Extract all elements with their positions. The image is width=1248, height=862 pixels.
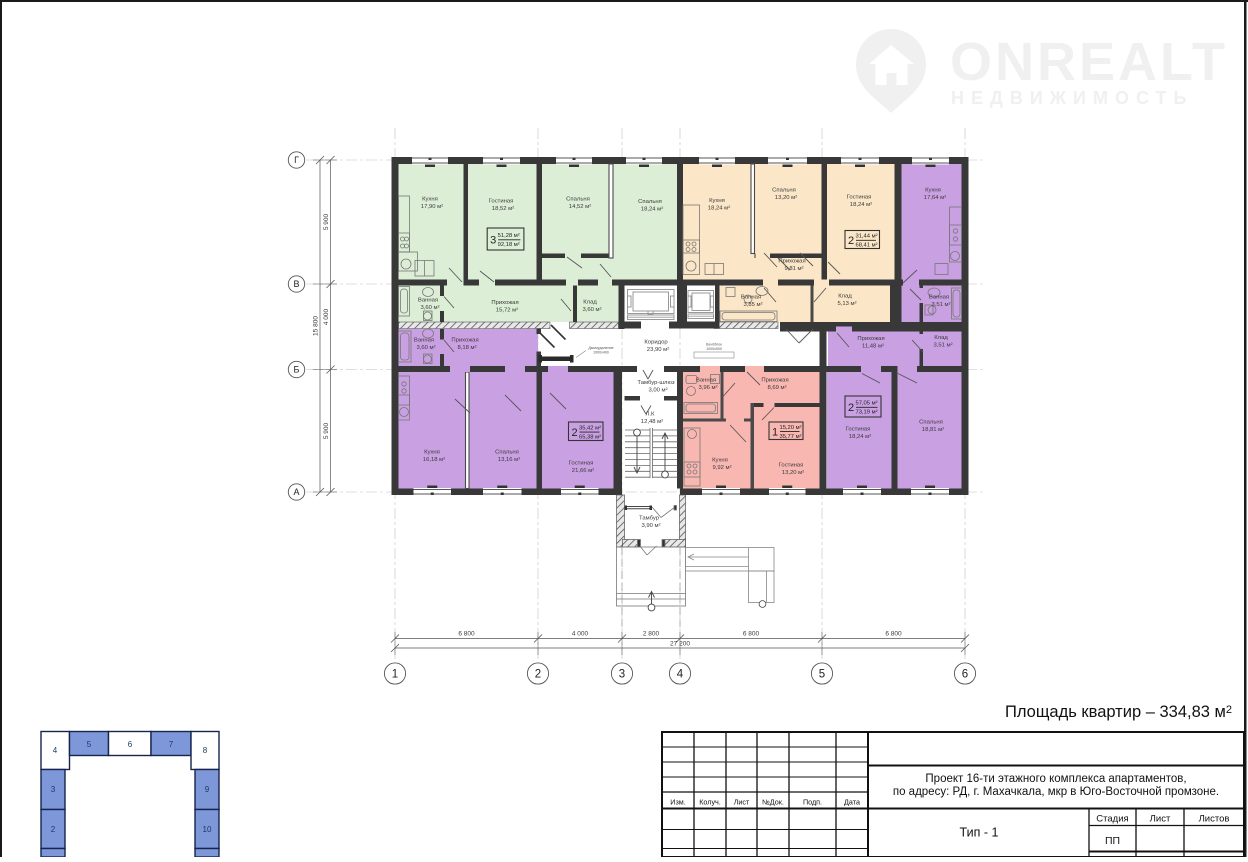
svg-text:3,51 м²: 3,51 м²: [933, 342, 952, 348]
svg-text:2: 2: [571, 427, 577, 439]
svg-text:Лист: Лист: [734, 798, 750, 807]
svg-text:35,77 м²: 35,77 м²: [779, 434, 801, 440]
svg-text:Ванная: Ванная: [418, 298, 438, 304]
svg-text:Площадь квартир – 334,83 м2: Площадь квартир – 334,83 м2: [1005, 703, 1232, 721]
svg-text:Б: Б: [294, 365, 300, 375]
svg-text:12,48 м²: 12,48 м²: [641, 419, 663, 425]
svg-text:Спальня: Спальня: [495, 450, 519, 456]
svg-text:Тамбур: Тамбур: [639, 516, 660, 522]
svg-text:Проект 16-ти этажного комплекс: Проект 16-ти этажного комплекса апартаме…: [925, 773, 1186, 785]
svg-text:Клад: Клад: [934, 335, 948, 341]
svg-text:3,60 м²: 3,60 м²: [420, 305, 439, 311]
svg-text:Гостиная: Гостиная: [569, 461, 594, 467]
svg-text:Тип - 1: Тип - 1: [960, 826, 999, 840]
svg-text:2: 2: [848, 235, 854, 247]
svg-text:Спальня: Спальня: [566, 197, 590, 203]
svg-text:6 800: 6 800: [885, 631, 902, 638]
svg-text:Лист: Лист: [1150, 814, 1171, 825]
svg-text:ONREALT: ONREALT: [950, 32, 1228, 92]
svg-text:15,20 м²: 15,20 м²: [779, 425, 801, 431]
svg-text:Г: Г: [294, 155, 299, 165]
svg-text:3: 3: [490, 235, 496, 247]
svg-text:3,85 м²: 3,85 м²: [743, 302, 762, 308]
svg-text:27 200: 27 200: [670, 641, 690, 648]
svg-text:Листов: Листов: [1199, 814, 1230, 825]
svg-text:9: 9: [205, 785, 210, 794]
svg-text:65,38 м²: 65,38 м²: [579, 434, 601, 440]
svg-text:8,18 м²: 8,18 м²: [457, 345, 476, 351]
svg-text:1000х400: 1000х400: [593, 351, 609, 355]
svg-text:9,92 м²: 9,92 м²: [712, 465, 731, 471]
svg-text:Ванная: Ванная: [929, 295, 949, 301]
svg-text:9,81 м²: 9,81 м²: [784, 266, 803, 272]
svg-text:6 800: 6 800: [458, 631, 475, 638]
svg-text:21,66 м²: 21,66 м²: [572, 468, 594, 474]
svg-text:92,18 м²: 92,18 м²: [498, 242, 520, 248]
svg-text:16,18 м²: 16,18 м²: [423, 457, 445, 463]
svg-text:6 800: 6 800: [743, 631, 760, 638]
svg-text:14,52 м²: 14,52 м²: [569, 204, 591, 210]
svg-text:Ванная: Ванная: [414, 338, 434, 344]
svg-text:6: 6: [128, 740, 133, 749]
svg-text:3,00 м²: 3,00 м²: [648, 387, 667, 393]
svg-text:Спальня: Спальня: [919, 420, 943, 426]
svg-text:Колуч.: Колуч.: [699, 798, 721, 807]
svg-text:Прихожая: Прихожая: [491, 300, 518, 306]
svg-text:Кухня: Кухня: [925, 188, 941, 194]
svg-text:35,42 м²: 35,42 м²: [579, 425, 601, 431]
svg-text:17,64 м²: 17,64 м²: [924, 195, 946, 201]
svg-text:Тамбур-шлюз: Тамбур-шлюз: [637, 380, 675, 386]
svg-text:5: 5: [819, 669, 825, 681]
svg-text:1: 1: [772, 426, 778, 438]
svg-text:Ванная: Ванная: [741, 295, 761, 301]
svg-text:Стадия: Стадия: [1096, 814, 1128, 825]
svg-text:Гостиная: Гостиная: [846, 427, 871, 433]
svg-text:Прихожая: Прихожая: [761, 378, 788, 384]
svg-text:3,51 м²: 3,51 м²: [931, 302, 950, 308]
svg-text:18,81 м²: 18,81 м²: [922, 427, 944, 433]
svg-text:Дымоудаление: Дымоудаление: [588, 346, 613, 350]
svg-text:ПП: ПП: [1105, 835, 1120, 847]
svg-text:13,20 м²: 13,20 м²: [782, 470, 804, 476]
svg-text:Ванная: Ванная: [696, 378, 716, 384]
svg-text:18,24 м²: 18,24 м²: [850, 202, 872, 208]
svg-text:Подп.: Подп.: [803, 798, 822, 807]
svg-text:Кухня: Кухня: [422, 197, 438, 203]
svg-text:68,41 м²: 68,41 м²: [855, 243, 877, 249]
svg-text:8: 8: [203, 746, 208, 755]
svg-text:7: 7: [169, 740, 174, 749]
svg-text:Коридор: Коридор: [644, 340, 668, 346]
svg-text:по адресу: РД, г. Махачкала, м: по адресу: РД, г. Махачкала, мкр в Юго-В…: [893, 786, 1219, 798]
svg-text:4: 4: [53, 746, 58, 755]
svg-text:Спальня: Спальня: [638, 199, 662, 205]
svg-text:3,96 м²: 3,96 м²: [698, 385, 717, 391]
svg-text:15,72 м²: 15,72 м²: [496, 307, 518, 313]
svg-text:Прихожая: Прихожая: [451, 338, 478, 344]
svg-text:Изм.: Изм.: [670, 798, 685, 807]
svg-text:Спальня: Спальня: [772, 188, 796, 194]
svg-text:3,60 м²: 3,60 м²: [416, 345, 435, 351]
svg-text:23,90 м²: 23,90 м²: [647, 347, 669, 353]
svg-text:4: 4: [677, 669, 684, 681]
svg-text:11,48 м²: 11,48 м²: [862, 343, 884, 349]
svg-text:Клад: Клад: [583, 300, 597, 306]
svg-text:Кухня: Кухня: [709, 198, 725, 204]
svg-text:Кухня: Кухня: [712, 458, 728, 464]
svg-text:4 000: 4 000: [323, 308, 330, 325]
svg-text:Прихожая: Прихожая: [857, 336, 884, 342]
svg-text:Кухня: Кухня: [424, 450, 440, 456]
svg-text:3: 3: [51, 785, 56, 794]
svg-text:18,52 м²: 18,52 м²: [492, 206, 514, 212]
svg-text:4 000: 4 000: [572, 631, 589, 638]
svg-text:А: А: [293, 487, 299, 497]
svg-text:5 900: 5 900: [323, 422, 330, 439]
svg-text:10: 10: [203, 825, 212, 834]
svg-text:13,16 м²: 13,16 м²: [498, 457, 520, 463]
svg-text:1: 1: [392, 669, 398, 681]
svg-text:Л.К: Л.К: [646, 412, 656, 418]
svg-text:1000х500: 1000х500: [706, 347, 722, 351]
svg-text:Дата: Дата: [844, 798, 860, 807]
svg-text:№Док.: №Док.: [762, 798, 784, 807]
svg-text:8,69 м²: 8,69 м²: [767, 385, 786, 391]
svg-text:5 900: 5 900: [323, 213, 330, 230]
svg-text:17,90 м²: 17,90 м²: [421, 204, 443, 210]
svg-text:В: В: [293, 279, 299, 289]
svg-text:6: 6: [962, 669, 968, 681]
svg-text:2: 2: [51, 825, 56, 834]
svg-text:18,24 м²: 18,24 м²: [641, 206, 663, 212]
svg-text:18,24 м²: 18,24 м²: [849, 434, 871, 440]
svg-text:3,90 м²: 3,90 м²: [641, 523, 660, 529]
svg-text:15 800: 15 800: [313, 316, 320, 336]
svg-text:Прихожая: Прихожая: [778, 259, 805, 265]
svg-text:3,60 м²: 3,60 м²: [582, 307, 601, 313]
svg-text:2: 2: [535, 669, 541, 681]
svg-text:5,13 м²: 5,13 м²: [837, 301, 856, 307]
svg-text:Вентблок: Вентблок: [706, 343, 722, 347]
svg-text:НЕДВИЖИМОСТЬ: НЕДВИЖИМОСТЬ: [951, 88, 1193, 108]
svg-text:Гостиная: Гостиная: [489, 199, 514, 205]
svg-text:73,19 м²: 73,19 м²: [855, 410, 877, 416]
svg-text:13,20 м²: 13,20 м²: [775, 195, 797, 201]
svg-text:3: 3: [619, 669, 625, 681]
svg-text:18,24 м²: 18,24 м²: [708, 205, 730, 211]
svg-text:5: 5: [87, 740, 92, 749]
svg-text:Клад: Клад: [838, 294, 852, 300]
svg-text:Гостиная: Гостиная: [779, 463, 804, 469]
svg-text:31,44 м²: 31,44 м²: [855, 234, 877, 240]
svg-text:2: 2: [848, 402, 854, 414]
svg-text:51,28 м²: 51,28 м²: [498, 233, 520, 239]
svg-text:57,05 м²: 57,05 м²: [855, 401, 877, 407]
svg-text:Гостиная: Гостиная: [847, 195, 872, 201]
svg-text:2 800: 2 800: [643, 631, 660, 638]
